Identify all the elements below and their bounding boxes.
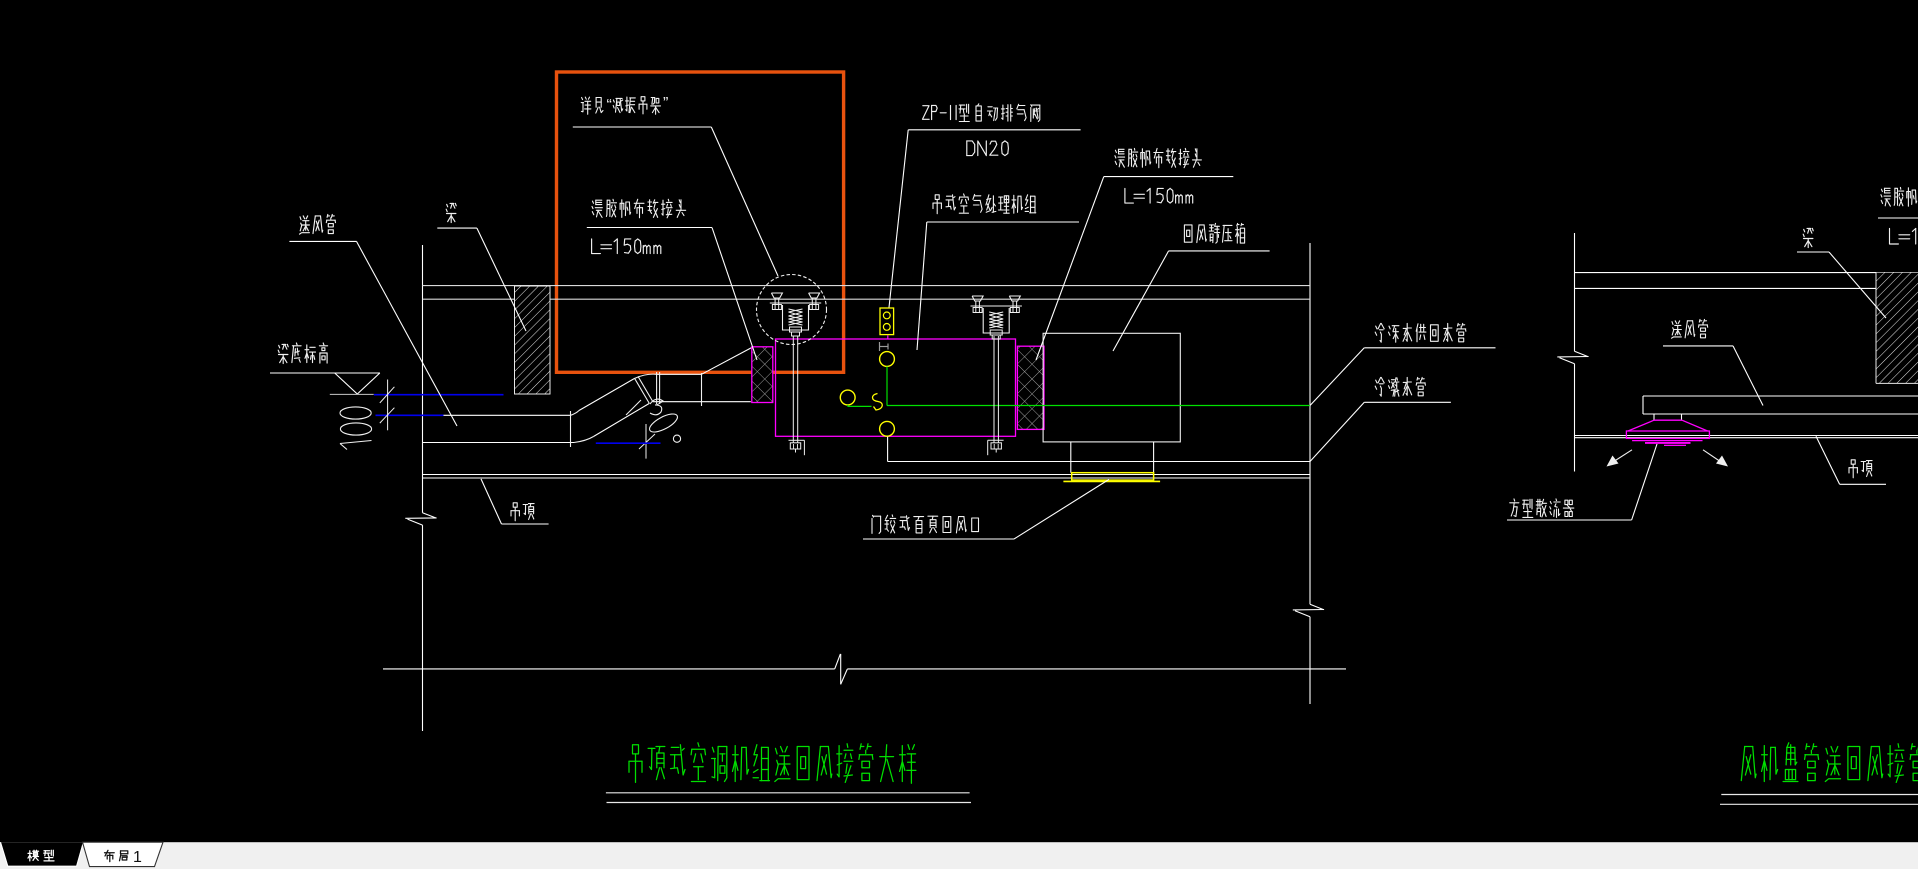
svg-text:1: 1	[133, 849, 142, 866]
svg-text:”: ”	[663, 95, 668, 112]
svg-text:“: “	[607, 97, 612, 114]
